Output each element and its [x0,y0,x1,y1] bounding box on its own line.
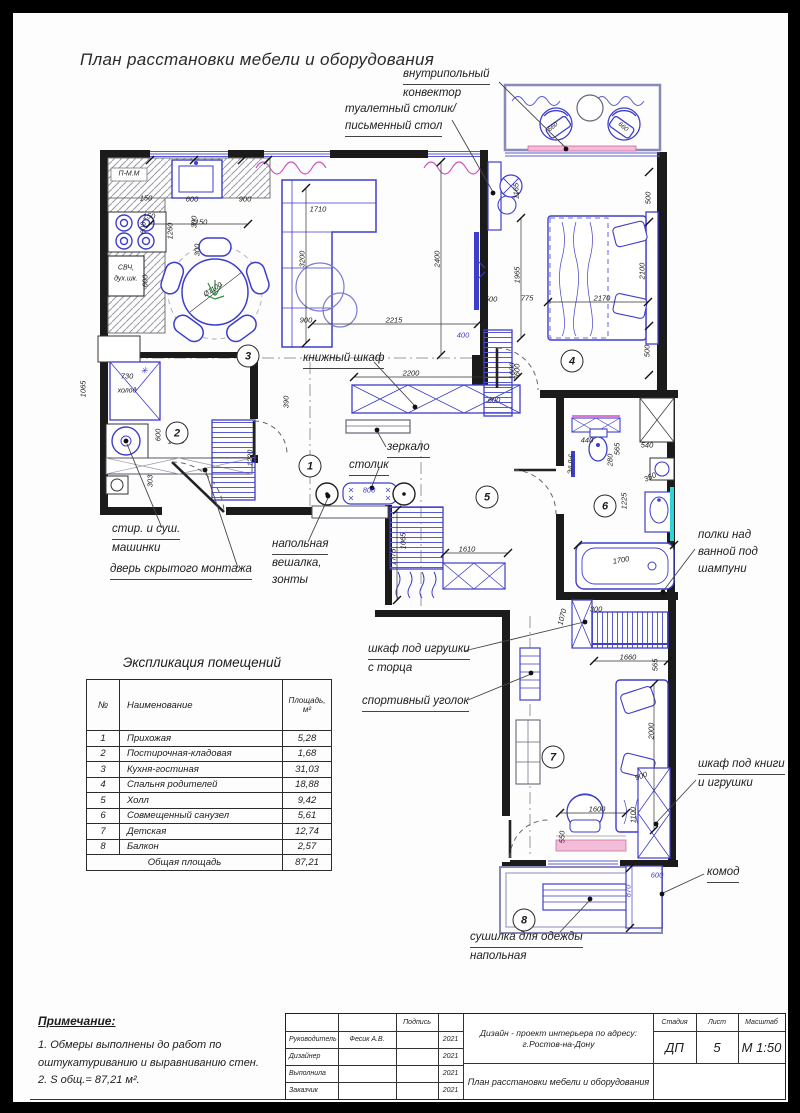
legend-cell-area: 5,61 [283,808,332,824]
room-number: 3 [237,345,260,368]
plan-annotation: шкаф под книгии игрушки [698,756,785,792]
legend-cell-area: 1,68 [283,746,332,762]
plan-small-label: СВЧ, [118,265,134,272]
legend-row: 2Постирочная-кладовая1,68 [87,746,332,762]
legend-row: 1Прихожая5,28 [87,731,332,747]
dimension-label: 775 [521,294,534,303]
legend-header-name: Наименование [120,680,283,731]
legend-header-area: Площадь, м² [283,680,332,731]
dimension-label: 1165 [512,183,521,199]
dimension-label: 600 [186,195,199,204]
plan-text-layer: 1506009001502150600300300126060073090010… [0,0,800,1113]
dimension-label: 3200 [298,251,307,268]
dimension-label: 2200 [403,369,420,378]
plan-small-label: дух.шк. [114,276,138,283]
dimension-label: 600 [488,396,501,405]
titleblock-sheet-title: План расстановки мебели и оборудования [464,1064,653,1099]
plan-annotation: комод [707,864,739,883]
legend-cell-area: 31,03 [283,762,332,778]
legend-cell-num: 4 [87,777,120,793]
room-number: 2 [166,422,189,445]
plan-annotation-line: спортивный уголок [362,693,469,712]
plan-annotation-line: напольная [272,536,328,555]
plan-annotation-line: ванной под [698,544,758,561]
dimension-label: 600 [154,429,163,442]
dimension-label: 440 [581,436,594,445]
legend-cell-area: 9,42 [283,793,332,809]
plan-small-label: холод [118,388,137,395]
plan-annotation: напольнаявешалка,зонты [272,536,328,589]
titleblock-role-1: Руководитель [286,1031,341,1048]
notes-line-1: 1. Обмеры выполнены до работ по [38,1037,259,1055]
page-title: План расстановки мебели и оборудования [80,50,434,70]
page-border-right [788,0,800,1113]
legend-title: Экспликация помещений [86,655,318,670]
dimension-label: 600 [141,275,150,288]
legend-row: 3Кухня-гостиная31,03 [87,762,332,778]
dimension-label: 150 [140,194,153,203]
dimension-label: 870 [624,885,633,898]
titleblock-project: Дизайн - проект интерьера по адресу: г.Р… [464,1014,653,1063]
legend-cell-num: 8 [87,839,120,855]
dimension-label: 1600 [589,805,606,814]
dimension-label: 900 [239,195,252,204]
dimension-label: 2100 [638,263,647,280]
legend-total-value: 87,21 [283,855,332,871]
dimension-label: 1065 [79,381,88,398]
plan-annotation: дверь скрытого монтажа [110,561,252,580]
plan-small-label: Эл.п-с [568,454,575,474]
legend-cell-num: 3 [87,762,120,778]
legend-row: 8Балкон2,57 [87,839,332,855]
plan-annotation-line: сушилка для одежды [470,929,583,948]
room-number: 7 [542,746,565,769]
dimension-label: 660 [617,121,630,133]
notes-line-3: 2. S общ.= 87,21 м². [38,1072,259,1090]
legend-cell-num: 5 [87,793,120,809]
legend-total-label: Общая площадь [87,855,283,871]
dimension-label: 900 [300,316,313,325]
plan-annotation: столик [349,457,389,476]
room-legend: Экспликация помещений № Наименование Пло… [86,655,318,871]
plan-annotation-line: полки над [698,527,758,544]
dimension-label: 1260 [166,223,175,240]
titleblock-year-3: 2021 [438,1065,463,1082]
titleblock-scale-value: М 1:50 [738,1032,785,1063]
plan-annotation: спортивный уголок [362,693,469,712]
legend-header-num: № [87,680,120,731]
legend-cell-name: Прихожая [120,731,283,747]
dimension-label: 600 [139,222,148,235]
legend-table: № Наименование Площадь, м² 1Прихожая5,28… [86,679,332,871]
dimension-label: 1220 [246,450,255,467]
plan-annotation-line: зонты [272,572,328,589]
plan-annotation-line: вешалка, [272,555,328,572]
titleblock-year-2: 2021 [438,1048,463,1065]
titleblock-name-3 [338,1065,396,1082]
dimension-label: 500 [485,295,498,304]
dimension-label: 800 [363,486,376,495]
titleblock-scale-label: Масштаб [738,1014,785,1031]
legend-cell-area: 18,88 [283,777,332,793]
plan-annotation-line: шкаф под книги [698,756,785,775]
titleblock-sheet-label: Лист [696,1014,738,1031]
dimension-label: 550 [558,831,567,844]
dimension-label: 390 [282,396,291,409]
dimension-label: 150 [143,212,156,221]
title-block: Подпись Руководитель Фесик А.В. 2021 Диз… [285,1013,786,1100]
plan-annotation: книжный шкаф [303,350,384,369]
legend-cell-name: Холл [120,793,283,809]
legend-header-row: № Наименование Площадь, м² [87,680,332,731]
dimension-label: 500 [644,192,653,205]
dimension-label: 2400 [433,251,442,268]
plan-annotation-line: письменный стол [345,118,456,137]
titleblock-sign-header: Подпись [396,1014,438,1031]
legend-cell-area: 5,28 [283,731,332,747]
dimension-label: 400 [457,331,470,340]
plan-annotation-line: зеркало [387,439,430,458]
dimension-label: 300 [190,216,199,229]
dimension-label: 660 [547,121,560,133]
legend-cell-name: Постирочная-кладовая [120,746,283,762]
plan-annotation-line: напольная [470,948,583,965]
sheet-frame-bottom-line [30,1099,285,1100]
legend-row: 7Детская12,74 [87,824,332,840]
dimension-label: 1610 [459,545,476,554]
plan-annotation: шкаф под игрушкис торца [368,641,470,677]
legend-cell-num: 1 [87,731,120,747]
titleblock-role-4: Заказчик [286,1082,341,1099]
dimension-label: 1100 [629,807,638,823]
plan-small-label: П-М.М [118,171,139,178]
plan-small-label: ✳ [140,366,148,377]
titleblock-role-2: Дизайнер [286,1048,341,1065]
plan-annotation-line: конвектор [403,85,490,102]
plan-annotation: зеркало [387,439,430,458]
dimension-label: 303 [146,475,155,488]
legend-cell-name: Детская [120,824,283,840]
page-border-top [0,0,800,13]
plan-annotation-line: туалетный столик/ [345,101,456,118]
plan-annotation-line: дверь скрытого монтажа [110,561,252,580]
plan-annotation-line: машинки [112,540,180,557]
dimension-label: 900 [634,770,649,783]
dimension-label: 300 [590,605,603,614]
dimension-label: 2215 [386,316,403,325]
plan-annotation-line: и игрушки [698,775,785,792]
titleblock-year-4: 2021 [438,1082,463,1099]
notes-line-2: оштукатуриванию и выравниванию стен. [38,1055,259,1073]
legend-row: 4Спальня родителей18,88 [87,777,332,793]
plan-annotation-line: книжный шкаф [303,350,384,369]
legend-total-row: Общая площадь 87,21 [87,855,332,871]
plan-annotation-line: шампуни [698,561,758,578]
dimension-label: 1225 [620,493,629,510]
room-number: 4 [561,350,584,373]
legend-row: 5Холл9,42 [87,793,332,809]
dimension-label: 900 [100,381,109,394]
plan-annotation-line: стир. и суш. [112,521,180,540]
room-number: 5 [476,486,499,509]
notes-heading: Примечание: [38,1014,259,1028]
plan-annotation: туалетный столик/письменный стол [345,101,456,137]
dimension-label: 500 [643,345,652,358]
titleblock-project-line2: г.Ростов-на-Дону [523,1039,595,1050]
titleblock-role-3: Выполнила [286,1065,341,1082]
dimension-label: 2170 [594,294,611,303]
legend-cell-area: 2,57 [283,839,332,855]
titleblock-name-2 [338,1048,396,1065]
dimension-label: 280 [606,454,615,467]
plan-annotation: полки надванной подшампуни [698,527,758,578]
dimension-label: 300 [193,244,202,257]
dimension-label: 1965 [513,267,522,284]
dimension-label: 1700 [612,554,630,566]
dimension-label: 600 [513,364,522,377]
dimension-label: 1775 [389,549,398,566]
titleblock-name-1: Фесик А.В. [338,1031,396,1048]
legend-header-area-line1: Площадь, [289,696,326,705]
legend-cell-num: 7 [87,824,120,840]
legend-header-area-line2: м² [303,705,311,714]
room-number: 6 [594,495,617,518]
plan-annotation-line: шкаф под игрушки [368,641,470,660]
dimension-label: 1710 [310,205,327,214]
dimension-label: 2000 [647,723,656,740]
room-number: 1 [299,455,322,478]
titleblock-stage-value: ДП [653,1032,696,1063]
dimension-label: 350 [642,470,657,483]
plan-annotation: стир. и суш.машинки [112,521,180,557]
legend-cell-num: 6 [87,808,120,824]
legend-cell-name: Кухня-гостиная [120,762,283,778]
legend-cell-name: Спальня родителей [120,777,283,793]
dimension-label: 1065 [399,533,408,550]
legend-row: 6Совмещенный санузел5,61 [87,808,332,824]
dimension-label: 540 [641,441,654,450]
dimension-label: 1070 [555,608,568,626]
titleblock-project-line1: Дизайн - проект интерьера по адресу: [480,1028,637,1039]
legend-cell-num: 2 [87,746,120,762]
dimension-label: 730 [121,372,134,381]
titleblock-name-4 [338,1082,396,1099]
legend-cell-name: Балкон [120,839,283,855]
legend-cell-name: Совмещенный санузел [120,808,283,824]
plan-annotation: сушилка для одеждынапольная [470,929,583,965]
dimension-label: 1660 [620,653,637,662]
notes-block: Примечание: 1. Обмеры выполнены до работ… [38,1014,259,1090]
plan-annotation: внутрипольныйконвектор [403,66,490,102]
plan-small-label: Ø1100 [202,282,223,299]
dimension-label: 600 [651,871,664,880]
plan-annotation-line: комод [707,864,739,883]
titleblock-stage-label: Стадия [653,1014,696,1031]
page-border-left [0,0,13,1113]
legend-cell-area: 12,74 [283,824,332,840]
page-border-bottom [0,1102,800,1113]
drawing-sheet: { "page": { "title": "План расстановки м… [0,0,800,1113]
titleblock-year-1: 2021 [438,1031,463,1048]
titleblock-sheet-value: 5 [696,1032,738,1063]
plan-annotation-line: столик [349,457,389,476]
dimension-label: 565 [651,659,660,672]
plan-annotation-line: с торца [368,660,470,677]
